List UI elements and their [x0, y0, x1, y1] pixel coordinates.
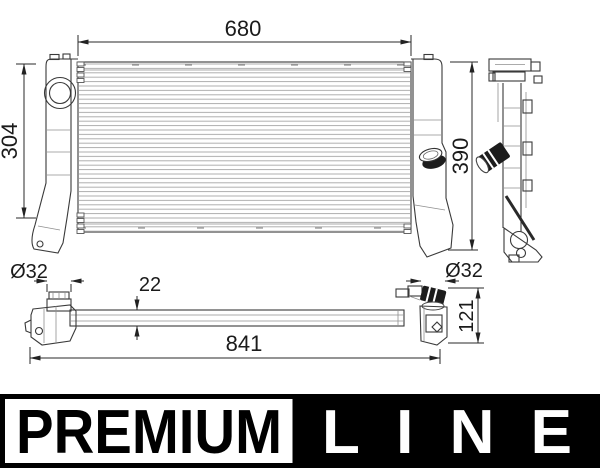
- dim-label-841: 841: [226, 331, 263, 356]
- dim-label-680: 680: [225, 16, 262, 41]
- right-tank: [411, 55, 453, 258]
- bottom-left-connector: [25, 292, 76, 345]
- dimension-connector-height-121: 121: [448, 288, 484, 343]
- dim-label-304: 304: [0, 123, 22, 160]
- dimension-width-680: 680: [78, 16, 411, 56]
- side-view-filler-neck: [474, 142, 511, 175]
- premium-line-logo: PREMIUM LINE: [3, 394, 600, 468]
- dim-label-d32-right: Ø32: [445, 260, 483, 282]
- radiator-bottom-view: Ø32 22 Ø32 121: [10, 260, 484, 364]
- dimension-diameter-left: Ø32: [10, 261, 84, 292]
- side-view-top-bracket: [489, 59, 542, 83]
- bottom-view-bar: [70, 310, 404, 326]
- filler-neck-cap: [418, 146, 447, 172]
- radiator-core: [77, 62, 411, 234]
- dimension-core-depth-22: 22: [137, 274, 161, 340]
- left-tank: [32, 54, 78, 253]
- dimension-diameter-right: Ø32: [406, 260, 483, 282]
- drawing-canvas: 680 304 390: [0, 0, 600, 472]
- dim-label-d32-left: Ø32: [10, 261, 48, 283]
- logo-premium-text: PREMIUM: [16, 398, 282, 467]
- radiator-technical-drawing-page: 680 304 390: [0, 0, 600, 472]
- radiator-front-view: 680 304 390: [0, 16, 478, 257]
- side-view-bottom-foot: [504, 196, 542, 262]
- radiator-side-view: [474, 59, 542, 262]
- dimension-overall-length-841: 841: [30, 331, 440, 364]
- dim-label-390: 390: [448, 138, 473, 175]
- dimension-height-304: 304: [0, 64, 36, 218]
- dim-label-121: 121: [456, 299, 478, 332]
- dim-label-22: 22: [139, 274, 161, 296]
